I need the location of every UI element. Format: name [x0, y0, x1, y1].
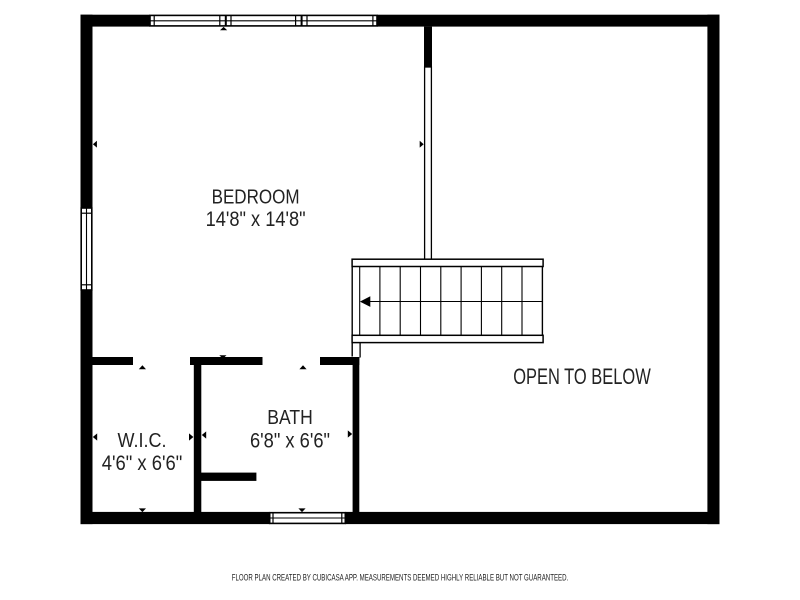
- svg-text:14'8" x 14'8": 14'8" x 14'8": [206, 208, 306, 231]
- svg-text:FLOOR PLAN CREATED BY CUBICASA: FLOOR PLAN CREATED BY CUBICASA APP. MEAS…: [232, 572, 569, 583]
- svg-text:OPEN TO BELOW: OPEN TO BELOW: [513, 364, 651, 389]
- svg-text:BATH: BATH: [267, 406, 313, 429]
- svg-text:BEDROOM: BEDROOM: [212, 186, 300, 209]
- svg-text:W.I.C.: W.I.C.: [118, 429, 167, 452]
- svg-text:4'6" x 6'6": 4'6" x 6'6": [102, 452, 183, 475]
- svg-text:6'8" x 6'6": 6'8" x 6'6": [250, 429, 330, 452]
